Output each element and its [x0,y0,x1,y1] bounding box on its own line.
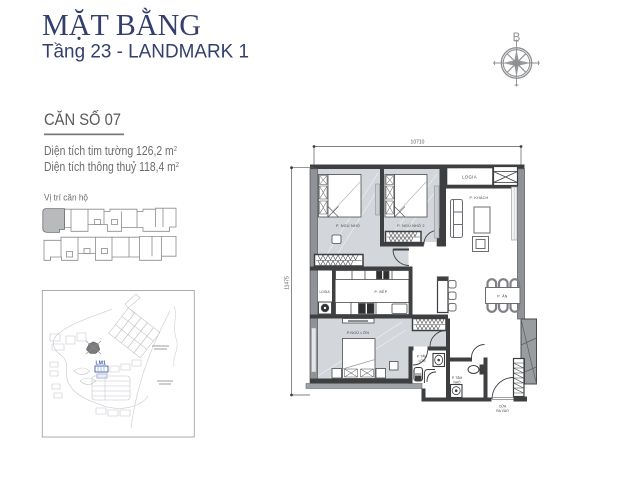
svg-text:MẶT BẰNG: MẶT BẰNG [42,7,201,42]
svg-text:11475: 11475 [285,276,291,290]
svg-text:P. TẮM: P. TẮM [417,354,428,359]
svg-text:P. KHÁCH: P. KHÁCH [470,196,489,200]
svg-text:P.NGỦ LỚN: P.NGỦ LỚN [347,330,369,335]
svg-text:P. BẾP: P. BẾP [375,289,388,294]
svg-text:CĂN SỐ 07: CĂN SỐ 07 [44,109,121,129]
svg-text:P. NGỦ NHỎ: P. NGỦ NHỎ [336,223,360,228]
svg-text:Diện tích thông thuỷ 118,4 m2: Diện tích thông thuỷ 118,4 m2 [44,160,179,174]
svg-text:LOGIA: LOGIA [462,175,477,180]
svg-text:CỬA: CỬA [499,404,507,409]
svg-text:NHỎ: NHỎ [453,380,461,385]
svg-text:P. ĂN: P. ĂN [497,295,508,299]
svg-text:10710: 10710 [411,140,425,146]
svg-text:LOGIA: LOGIA [319,290,330,294]
svg-text:RA VÀO: RA VÀO [496,409,509,413]
svg-text:P. TẮM: P. TẮM [452,375,463,380]
svg-text:Vị trí căn hộ: Vị trí căn hộ [44,193,88,204]
svg-text:Tầng 23 - LANDMARK 1: Tầng 23 - LANDMARK 1 [42,41,249,63]
svg-text:LỚN: LỚN [419,358,427,363]
svg-text:Diện tích tim tường 126,2 m2: Diện tích tim tường 126,2 m2 [44,144,177,158]
svg-text:P. NGỦ NHỎ 2: P. NGỦ NHỎ 2 [397,223,425,228]
